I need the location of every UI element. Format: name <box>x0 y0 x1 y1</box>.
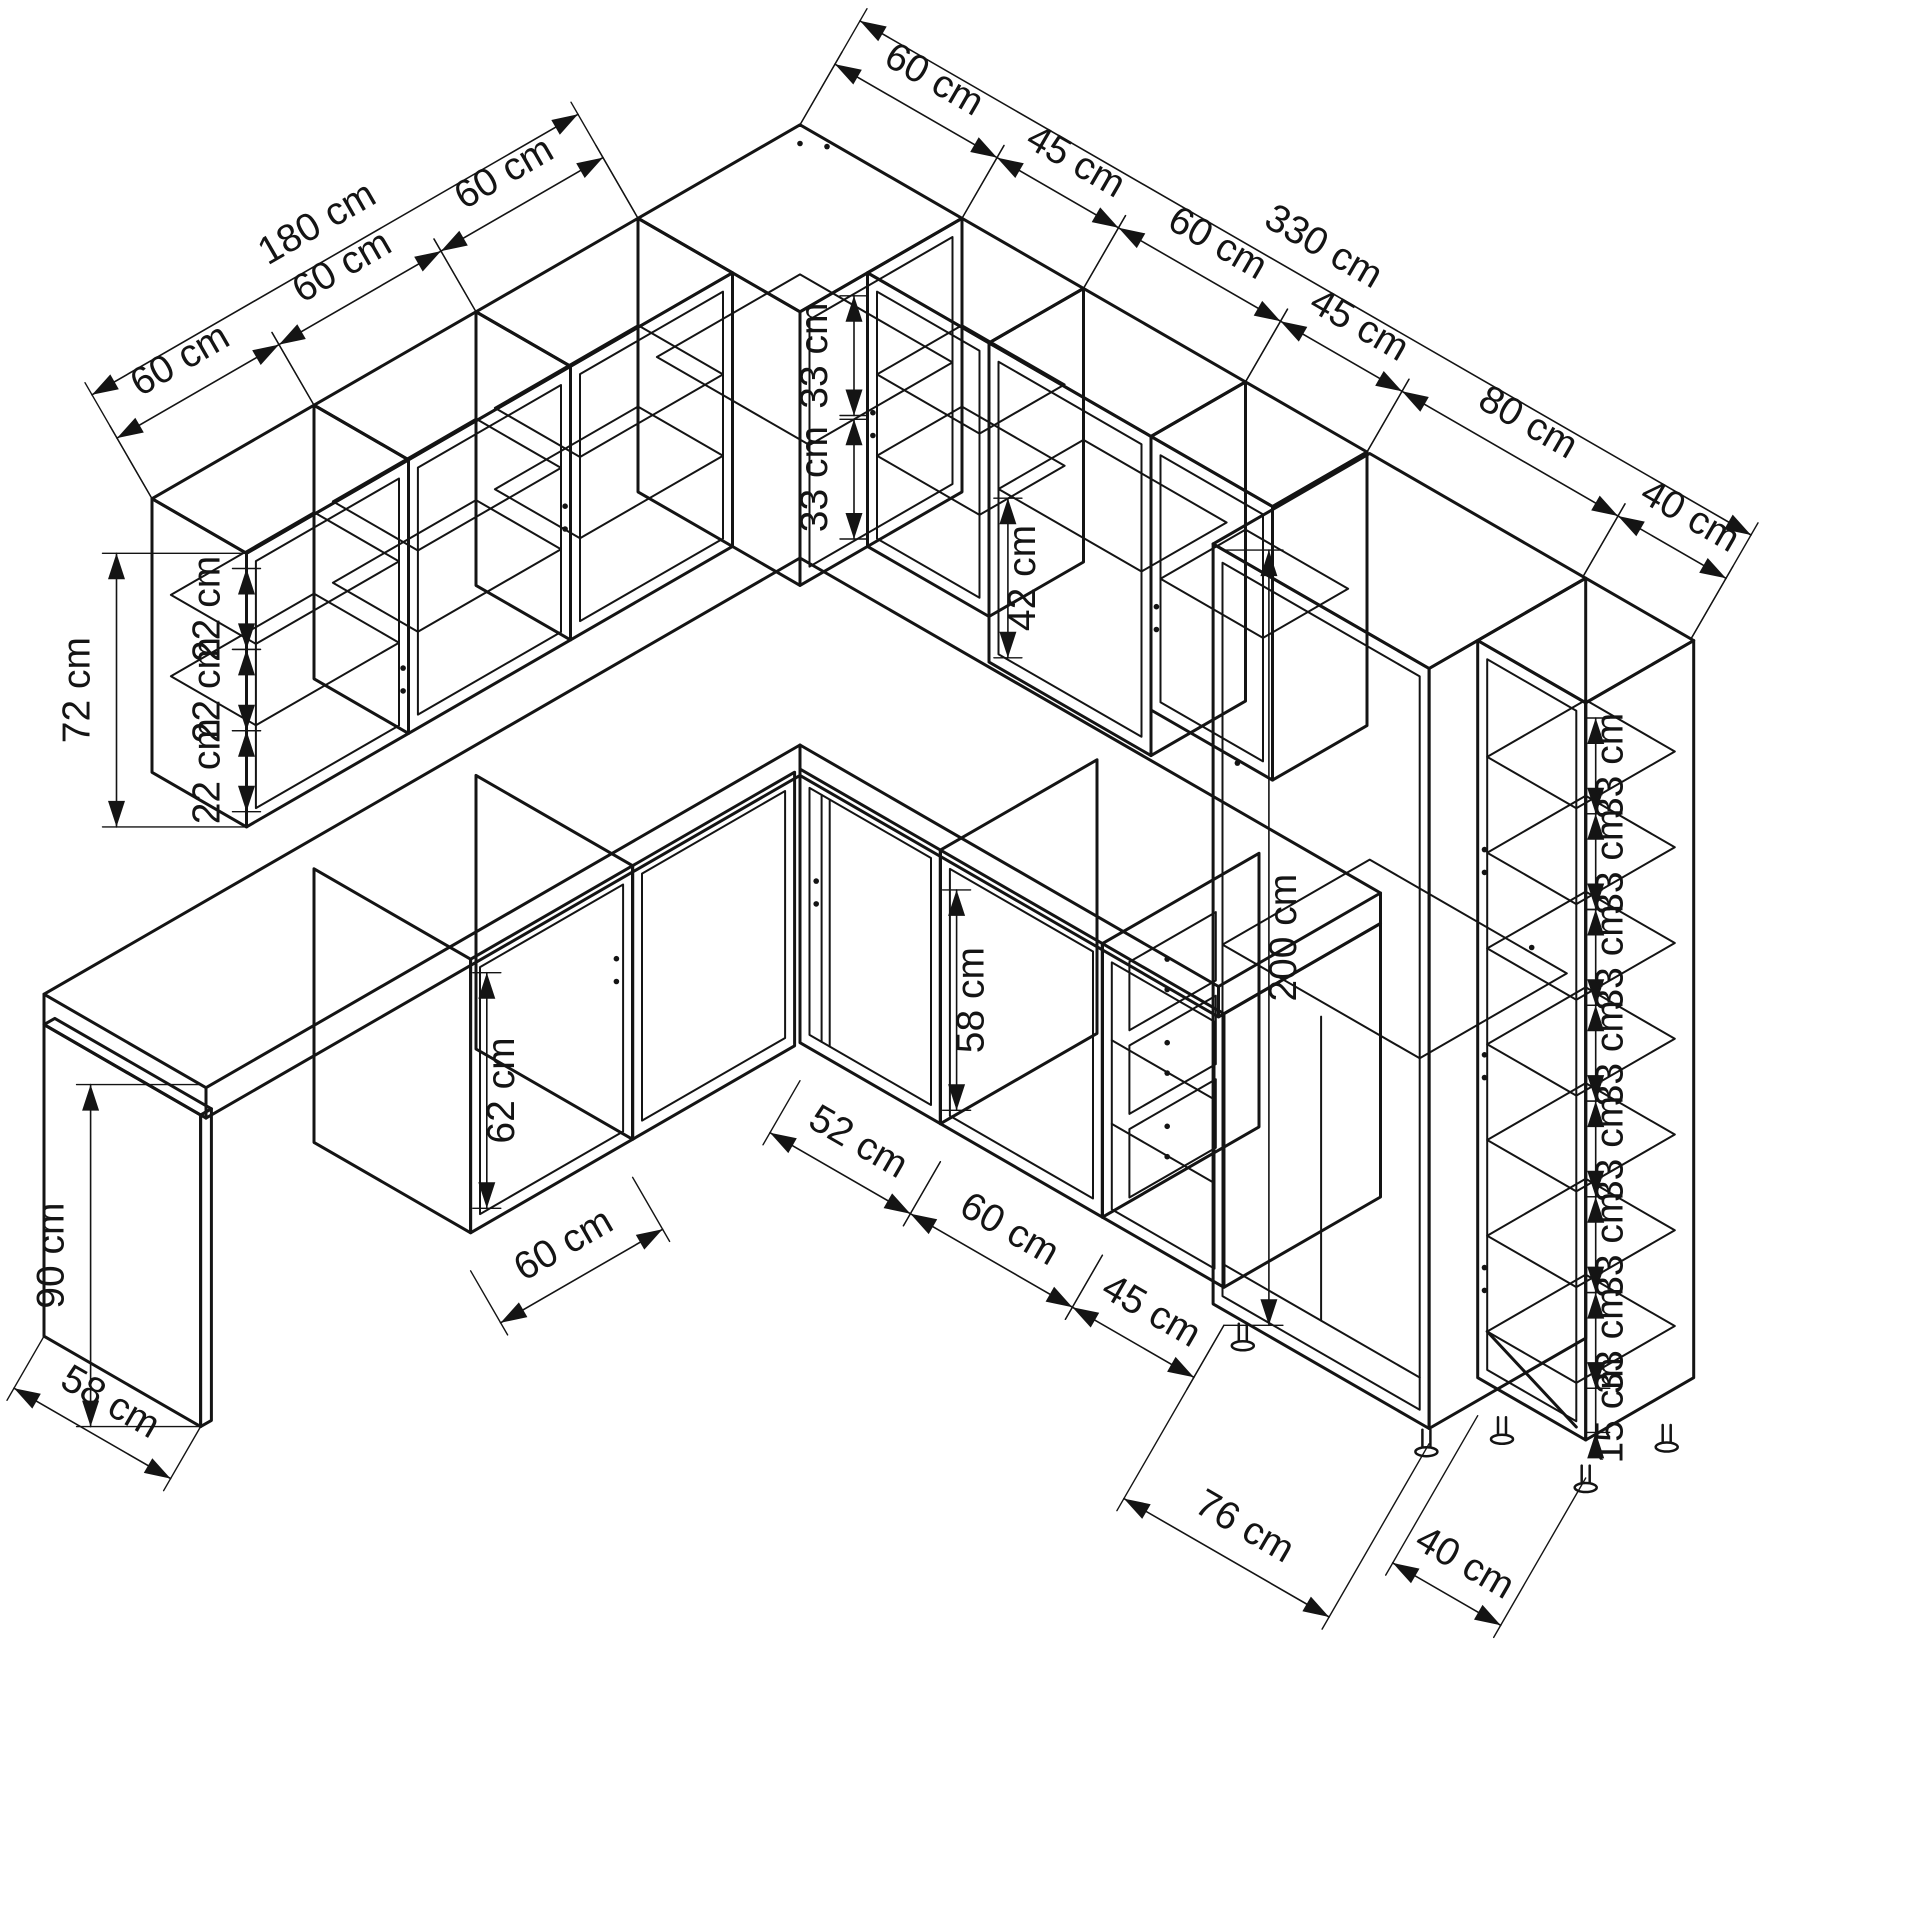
pin-hole-dot <box>400 665 406 671</box>
extension-line <box>471 1271 508 1335</box>
arrowhead <box>1281 321 1308 341</box>
dim-base-width-1: 60 cm <box>903 1162 1102 1320</box>
dim-right-wall-gap: 42 cm <box>994 498 1044 658</box>
side-face <box>638 218 800 585</box>
shelf-unit <box>1478 578 1694 1440</box>
dim-shelf-floor-width-label: 40 cm <box>1408 1517 1521 1607</box>
dim-right-segment-0-label: 60 cm <box>878 34 991 124</box>
extension-line <box>1246 309 1288 382</box>
arrowhead <box>835 64 862 84</box>
arrowhead <box>414 251 441 271</box>
dim-shelf-gap-2-label: 33 cm <box>1589 904 1632 1010</box>
arrowhead <box>860 21 887 41</box>
base-cabinet-52 <box>800 760 1097 1124</box>
extension-line <box>962 146 1004 219</box>
shelf <box>1487 1275 1675 1383</box>
pin-hole-dot <box>1482 870 1488 876</box>
arrowhead <box>576 158 603 178</box>
arrowhead <box>1474 1605 1501 1625</box>
arrowhead <box>1618 516 1645 536</box>
shelf <box>1487 892 1675 1000</box>
tall-cabinet-leg <box>1415 1430 1437 1457</box>
pin-hole-dot <box>1482 1265 1488 1271</box>
front-frame <box>580 292 723 621</box>
dim-tall-floor-width: 76 cm <box>1117 1325 1429 1629</box>
dim-tall-height-label: 200 cm <box>1262 874 1305 1002</box>
drawer-divider <box>1112 1124 1215 1183</box>
wall-cabinet-right-2 <box>989 288 1246 755</box>
dim-shelf-gap-2: 33 cm <box>1586 904 1632 1010</box>
dim-wall-gap-2: 22 cm <box>186 718 261 824</box>
arrowhead <box>14 1388 41 1408</box>
dim-left-base-width: 60 cm <box>471 1177 670 1335</box>
front-frame <box>1112 962 1215 1268</box>
drawer-unit <box>1102 912 1380 1287</box>
dim-shelf-gap-3: 33 cm <box>1586 1000 1632 1106</box>
dim-base-width-2-label: 45 cm <box>1095 1266 1208 1356</box>
extension-line <box>1367 379 1409 452</box>
pin-hole-dot <box>1164 1040 1170 1046</box>
base-cabinet-corner-left <box>476 772 795 1139</box>
dim-shelf-gap-0: 33 cm <box>1586 713 1632 819</box>
dim-shelf-gap-3-label: 33 cm <box>1589 1000 1632 1106</box>
top-face <box>638 125 962 312</box>
extension-line <box>434 239 476 312</box>
arrowhead <box>1124 1499 1151 1519</box>
dim-right-segment-4: 80 cm <box>1367 377 1625 577</box>
pin-hole-dot <box>1235 760 1241 766</box>
arrowhead <box>1092 207 1119 227</box>
leg-foot <box>1232 1341 1254 1350</box>
dim-counter-height: 90 cm <box>30 1085 201 1427</box>
pin-hole-dot <box>813 878 819 884</box>
arrowhead <box>970 137 997 157</box>
dim-right-wall-gap-label: 42 cm <box>1001 525 1044 631</box>
arrowhead <box>770 1133 797 1153</box>
arrowhead <box>999 632 1016 658</box>
pin-hole-dot <box>1154 604 1160 610</box>
isometric-kitchen-drawing: 180 cm60 cm60 cm60 cm330 cm60 cm45 cm60 … <box>0 0 1920 1920</box>
dim-left-segment-2-label: 60 cm <box>447 128 560 218</box>
dim-left-floor-depth: 58 cm <box>7 1336 201 1491</box>
dim-shelf-gap-1: 33 cm <box>1586 809 1632 915</box>
arrowhead <box>238 731 255 757</box>
pin-hole-dot <box>1482 1052 1488 1058</box>
arrowhead <box>501 1302 528 1322</box>
dim-corner-gap-0-label: 33 cm <box>793 302 836 408</box>
dim-right-segment-5-label: 40 cm <box>1634 470 1747 560</box>
drawer-side-panel <box>1129 996 1215 1114</box>
pin-hole-dot <box>400 688 406 694</box>
arrowhead <box>1119 228 1146 248</box>
dim-base-width-2: 45 cm <box>1065 1255 1224 1389</box>
dim-left-floor-depth-label: 58 cm <box>54 1357 167 1447</box>
pin-hole-dot <box>1164 1124 1170 1130</box>
extension-line <box>1583 504 1625 577</box>
dim-wall-gap-2-label: 22 cm <box>186 718 229 824</box>
dim-shelf-gap-5-label: 33 cm <box>1589 1192 1632 1298</box>
arrowhead <box>108 801 125 827</box>
front-face <box>247 460 409 827</box>
arrowhead <box>846 390 863 416</box>
technical-drawing-page: 180 cm60 cm60 cm60 cm330 cm60 cm45 cm60 … <box>0 0 1920 1920</box>
dim-wall-height-label: 72 cm <box>56 637 99 743</box>
dim-counter-height-label: 90 cm <box>30 1202 73 1308</box>
arrowhead <box>910 1214 937 1234</box>
arrowhead <box>238 649 255 675</box>
front-face <box>1102 944 1224 1288</box>
dim-right-segment-1: 45 cm <box>962 116 1133 288</box>
pin-hole-dot <box>824 144 830 150</box>
dim-shelf-gap-4-label: 33 cm <box>1589 1096 1632 1202</box>
extension-line <box>110 426 152 499</box>
extension-line <box>1691 566 1733 639</box>
arrowhead <box>1402 391 1429 411</box>
front-face <box>409 366 571 733</box>
pin-hole-dot <box>562 503 568 509</box>
arrowhead <box>238 786 255 812</box>
dim-shelf-gap-5: 33 cm <box>1586 1192 1632 1298</box>
drawer-side-panel <box>1129 1079 1215 1197</box>
dim-left-base-interior-label: 62 cm <box>480 1037 523 1143</box>
pin-hole-dot <box>870 433 876 439</box>
arrowhead <box>441 231 468 251</box>
arrowhead <box>1260 1299 1277 1325</box>
front-frame <box>1487 659 1576 1421</box>
pin-hole-dot <box>797 141 803 147</box>
pin-hole-dot <box>1164 987 1170 993</box>
shelf <box>1487 700 1675 808</box>
arrowhead <box>144 1458 171 1478</box>
pin-hole-dot <box>1164 1070 1170 1076</box>
shelf <box>877 325 1065 433</box>
shelf <box>1161 530 1349 638</box>
pin-hole-dot <box>614 956 620 962</box>
dim-right-segment-2-label: 60 cm <box>1161 198 1274 288</box>
dim-left-base-width-label: 60 cm <box>507 1199 620 1289</box>
pin-hole-dot <box>1164 956 1170 962</box>
arrowhead <box>238 569 255 595</box>
arrowhead <box>1072 1307 1099 1327</box>
shelf-unit-leg <box>1656 1425 1678 1452</box>
pin-hole-dot <box>1164 1154 1170 1160</box>
shelf <box>1487 1179 1675 1287</box>
shelf-unit-leg <box>1491 1417 1513 1443</box>
dim-shelf-bottom-gap: 15 cm <box>1586 1357 1632 1463</box>
pin-hole-dot <box>1482 1075 1488 1081</box>
extension-line <box>1084 216 1126 289</box>
tall-cabinet-leg <box>1232 1324 1254 1350</box>
top-face <box>44 1018 211 1115</box>
dim-corner-gap-1: 33 cm <box>793 419 868 539</box>
wall-cabinet-right-3 <box>1151 382 1367 780</box>
extension-line <box>800 52 842 125</box>
arrowhead <box>1699 558 1726 578</box>
top-face <box>868 218 1084 343</box>
wall-cabinet-right-1 <box>868 218 1084 616</box>
kitchen-isometric-figure: 180 cm60 cm60 cm60 cm330 cm60 cm45 cm60 … <box>0 0 1920 1920</box>
arrowhead <box>1302 1597 1329 1617</box>
extension-line <box>1322 1444 1429 1629</box>
dim-base-interior-label: 58 cm <box>950 947 993 1053</box>
arrowhead <box>238 705 255 731</box>
arrowhead <box>1046 1287 1073 1307</box>
arrowhead <box>1167 1357 1194 1377</box>
base-cabinet-62 <box>314 866 633 1233</box>
arrowhead <box>1393 1563 1420 1583</box>
pin-hole-dot <box>1529 945 1535 951</box>
dim-base-width-0: 52 cm <box>763 1081 940 1226</box>
dim-right-segment-3-label: 45 cm <box>1303 280 1416 370</box>
front-face <box>201 1109 212 1427</box>
dim-left-segment-2: 60 cm <box>434 128 638 312</box>
top-face <box>1151 382 1367 507</box>
dim-right-segment-1-label: 45 cm <box>1019 116 1132 206</box>
leg-foot <box>1656 1443 1678 1452</box>
arrowhead <box>279 324 306 344</box>
dim-corner-gap-1-label: 33 cm <box>793 426 836 532</box>
side-face <box>1429 578 1586 1428</box>
drawer-divider <box>1112 1040 1215 1099</box>
pin-hole-dot <box>1482 847 1488 853</box>
arrowhead <box>846 513 863 539</box>
arrowhead <box>551 114 578 134</box>
edge <box>1487 1332 1576 1428</box>
shelf <box>1487 1083 1675 1191</box>
arrowhead <box>92 374 119 394</box>
pin-hole-dot <box>1154 627 1160 633</box>
dim-shelf-gap-1-label: 33 cm <box>1589 809 1632 915</box>
dim-right-segment-0: 60 cm <box>800 34 1004 218</box>
arrowhead <box>1375 371 1402 391</box>
arrowhead <box>1254 301 1281 321</box>
arrowhead <box>117 418 144 438</box>
dim-right-segment-3: 45 cm <box>1246 280 1417 452</box>
dim-right-segment-5: 40 cm <box>1583 470 1747 638</box>
arrowhead <box>884 1193 911 1213</box>
dim-left-segment-0-label: 60 cm <box>123 315 236 405</box>
pin-hole-dot <box>562 526 568 532</box>
arrowhead <box>636 1229 663 1249</box>
arrowhead <box>82 1085 99 1111</box>
arrowhead <box>1591 496 1618 516</box>
arrowhead <box>108 553 125 579</box>
dim-tall-floor-width-label: 76 cm <box>1188 1481 1301 1571</box>
pin-hole-dot <box>1482 1288 1488 1294</box>
side-face <box>314 869 471 1233</box>
extension-line <box>164 1427 201 1491</box>
drawer-side-panel <box>1129 912 1215 1030</box>
shelf <box>877 407 1065 515</box>
pin-hole-dot <box>870 410 876 416</box>
shelf <box>333 500 561 632</box>
dim-right-segment-4-label: 80 cm <box>1472 377 1585 467</box>
dimension-line <box>860 21 1751 535</box>
dim-base-width-0-label: 52 cm <box>802 1096 915 1186</box>
front-frame <box>642 791 785 1121</box>
extension-line <box>1494 1478 1586 1637</box>
dim-corner-gap-0: 33 cm <box>793 296 868 416</box>
extension-line <box>272 333 314 406</box>
dim-shelf-gap-0-label: 33 cm <box>1589 713 1632 819</box>
pin-hole-dot <box>813 901 819 907</box>
leg-foot <box>1491 1435 1513 1444</box>
arrowhead <box>252 345 279 365</box>
dim-shelf-bottom-gap-label: 15 cm <box>1589 1357 1632 1463</box>
shelf <box>1487 796 1675 904</box>
shelf <box>495 407 723 539</box>
pin-hole-dot <box>614 979 620 985</box>
arrowhead <box>997 158 1024 178</box>
side-face <box>940 760 1097 1124</box>
dim-base-width-1-label: 60 cm <box>953 1184 1066 1274</box>
dim-shelf-gap-4: 33 cm <box>1586 1096 1632 1202</box>
extension-line <box>596 146 638 219</box>
front-frame <box>877 292 980 598</box>
